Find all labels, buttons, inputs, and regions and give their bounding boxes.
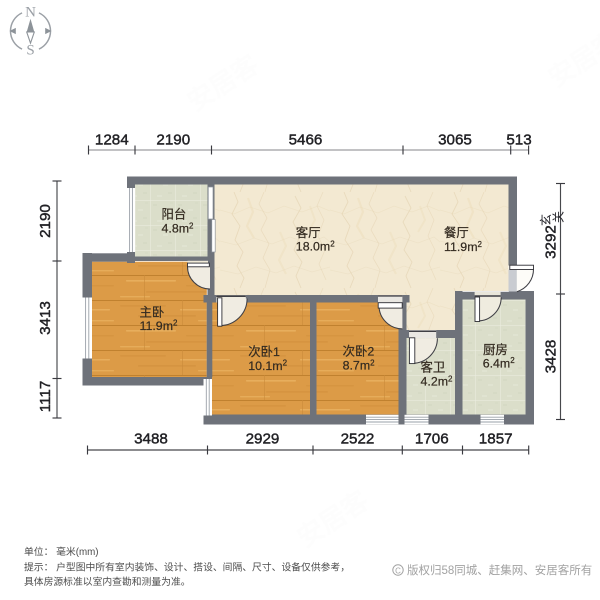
svg-text:提示： 户型图中所有室内装饰、设计、搭设、间隔、尺寸、设备仅: 提示： 户型图中所有室内装饰、设计、搭设、间隔、尺寸、设备仅供参考， [24,560,350,573]
svg-text:1117: 1117 [37,381,54,413]
svg-text:次卧2: 次卧2 [343,345,375,359]
svg-text:C: C [395,567,401,576]
svg-text:版权归58同城、赶集网、安居客所有: 版权归58同城、赶集网、安居客所有 [407,563,592,577]
svg-text:513: 513 [506,132,531,149]
svg-text:3413: 3413 [37,301,54,335]
svg-text:3292: 3292 [543,225,560,259]
svg-text:3428: 3428 [543,340,560,374]
svg-text:具体房源标准以室内查勘和测量为准。: 具体房源标准以室内查勘和测量为准。 [24,575,191,588]
svg-text:1706: 1706 [415,431,449,448]
svg-text:2190: 2190 [37,204,54,238]
svg-text:关: 关 [552,211,566,223]
svg-text:10.1m2: 10.1m2 [248,359,287,373]
svg-text:单位： 毫米(mm): 单位： 毫米(mm) [24,545,99,558]
svg-text:主卧: 主卧 [140,306,165,320]
svg-text:18.0m2: 18.0m2 [296,239,335,253]
svg-text:3065: 3065 [438,132,472,149]
svg-text:2522: 2522 [341,431,375,448]
svg-text:客厅: 客厅 [296,225,321,240]
svg-text:阳台: 阳台 [162,206,187,221]
svg-text:次卧1: 次卧1 [248,345,280,359]
svg-text:餐厅: 餐厅 [444,225,469,240]
svg-text:N: N [25,5,36,21]
svg-text:厨房: 厨房 [483,342,508,357]
svg-text:3488: 3488 [134,431,168,448]
svg-text:11.9m2: 11.9m2 [444,240,483,254]
svg-text:客卫: 客卫 [421,359,446,374]
svg-text:11.9m2: 11.9m2 [140,319,179,333]
svg-text:S: S [26,43,34,59]
svg-text:1284: 1284 [95,132,129,149]
svg-text:2929: 2929 [246,431,280,448]
svg-text:1857: 1857 [479,431,513,448]
svg-text:5466: 5466 [289,132,323,149]
svg-text:2190: 2190 [156,132,190,149]
